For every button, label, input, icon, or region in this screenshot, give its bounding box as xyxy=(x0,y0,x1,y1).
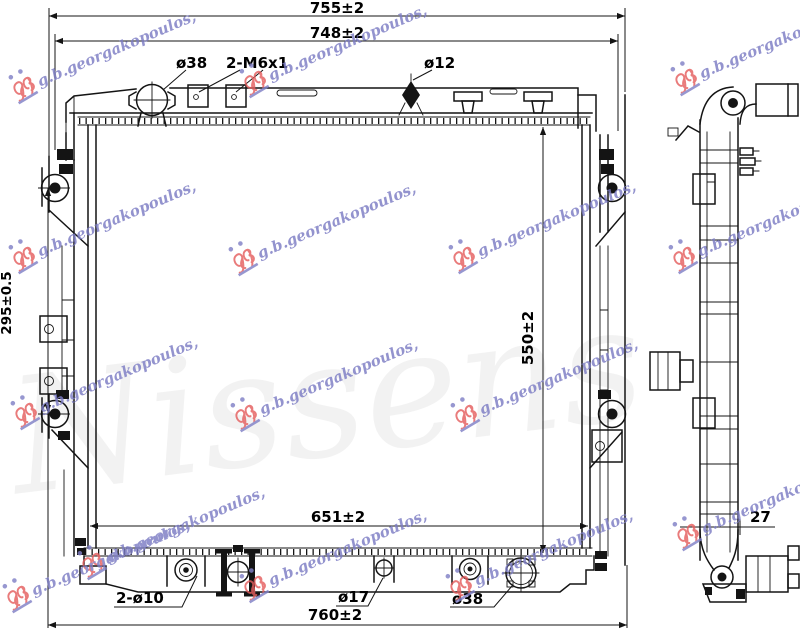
dim-760-text: 760±2 xyxy=(308,606,362,624)
radiator-technical-drawing: Nissens xyxy=(0,0,800,630)
dim-651-text: 651±2 xyxy=(311,508,365,526)
drawing-canvas: Nissens xyxy=(0,0,800,630)
dim-550-text: 550±2 xyxy=(519,311,537,365)
inlet-label-text: ø38 xyxy=(176,54,207,72)
center-pin-label-text: ø17 xyxy=(338,588,369,606)
bottom-pins-label-text: 2-ø10 xyxy=(116,589,164,607)
dim-295-text: 295±0.5 xyxy=(0,271,15,334)
overflow-label-text: ø12 xyxy=(424,54,455,72)
dim-755-text: 755±2 xyxy=(310,0,364,17)
